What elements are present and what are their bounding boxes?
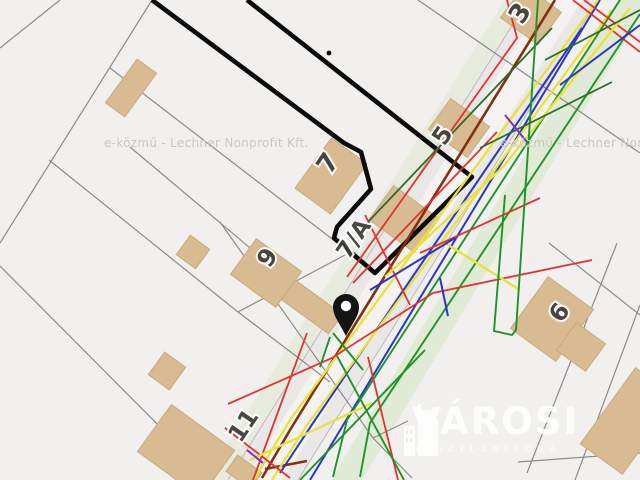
survey-point-dot xyxy=(327,51,332,56)
map-graphics: 7 7/A 9 5 3 6 11 xyxy=(0,0,640,480)
building-footprint-11 xyxy=(137,405,234,480)
parcel-line xyxy=(0,0,152,243)
building-shed xyxy=(176,235,210,269)
building-footprint xyxy=(105,59,156,117)
map-canvas[interactable]: 7 7/A 9 5 3 6 11 e-közmű - Lechner Nonpr… xyxy=(0,0,640,480)
parcel-line xyxy=(0,0,60,48)
building-shed xyxy=(148,352,185,390)
pin-hole xyxy=(341,301,351,311)
parcel-line xyxy=(49,160,238,312)
utility-line-blue xyxy=(280,28,582,473)
